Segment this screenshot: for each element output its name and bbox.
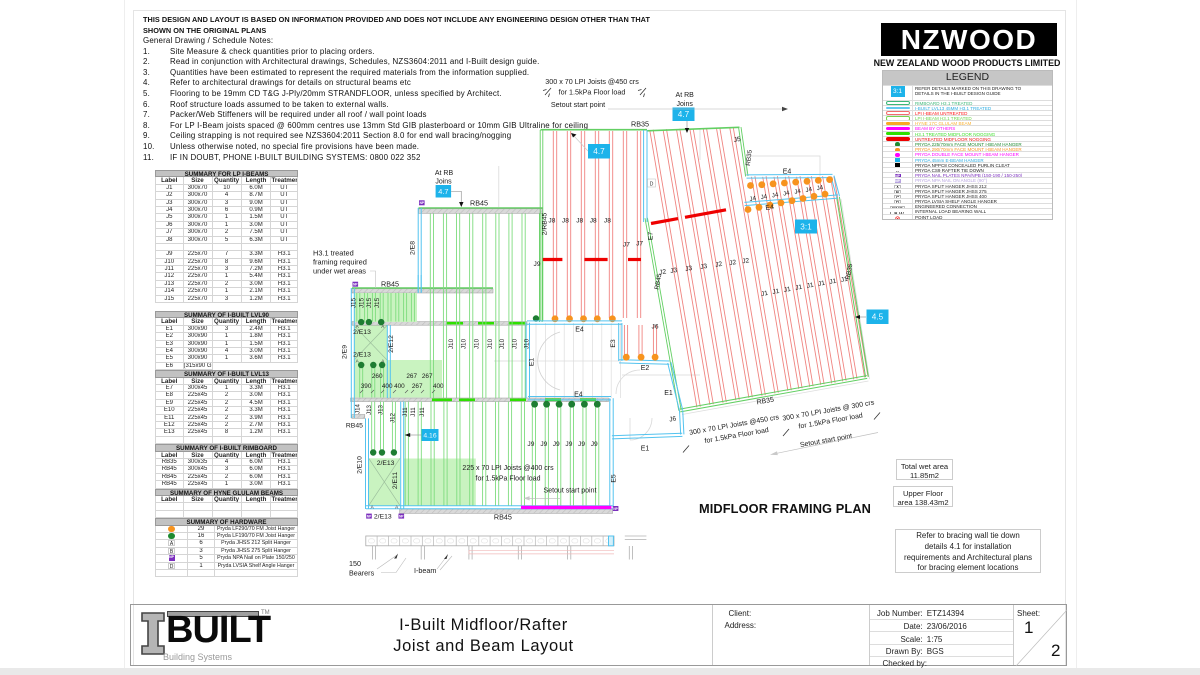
svg-text:J8: J8 (604, 218, 611, 225)
svg-text:J8: J8 (590, 218, 597, 225)
svg-text:J1: J1 (829, 278, 837, 286)
svg-text:J15: J15 (374, 297, 381, 308)
svg-text:J6: J6 (669, 415, 677, 423)
svg-text:J10: J10 (448, 338, 455, 349)
svg-text:E4: E4 (575, 326, 584, 333)
svg-text:E1: E1 (664, 390, 673, 397)
svg-text:Joins: Joins (435, 179, 452, 186)
svg-text:E1: E1 (528, 358, 535, 367)
svg-text:J4: J4 (749, 195, 757, 203)
svg-text:J2: J2 (742, 257, 750, 265)
svg-text:J10: J10 (487, 338, 494, 349)
svg-text:RB45: RB45 (494, 513, 512, 522)
svg-text:J10: J10 (499, 338, 506, 349)
svg-text:RB45: RB45 (346, 423, 363, 430)
svg-text:J9: J9 (534, 261, 541, 268)
svg-text:for 1.5kPa Floor load: for 1.5kPa Floor load (559, 88, 626, 97)
svg-text:267: 267 (412, 383, 423, 390)
svg-text:E3: E3 (610, 339, 617, 348)
svg-text:J15: J15 (351, 297, 358, 308)
svg-text:2/E9: 2/E9 (342, 345, 349, 359)
svg-text:Setout start point: Setout start point (799, 433, 852, 449)
svg-text:J11: J11 (410, 407, 417, 417)
svg-text:Setout start point: Setout start point (544, 488, 597, 495)
svg-text:I-beam: I-beam (414, 566, 436, 575)
svg-text:J9: J9 (565, 441, 572, 448)
svg-text:J8: J8 (562, 218, 569, 225)
svg-text:J1: J1 (795, 284, 803, 292)
svg-text:J10: J10 (511, 338, 518, 349)
svg-text:4.7: 4.7 (593, 147, 605, 156)
svg-text:J1: J1 (772, 288, 780, 296)
svg-text:225 x 70 LPI Joists @400 crs: 225 x 70 LPI Joists @400 crs (462, 465, 554, 472)
svg-text:D: D (650, 181, 654, 187)
svg-text:2/E13: 2/E13 (377, 460, 395, 467)
svg-text:2/E11: 2/E11 (392, 472, 399, 489)
svg-text:RB35: RB35 (631, 120, 649, 129)
svg-text:J10: J10 (524, 338, 531, 349)
svg-text:J4: J4 (816, 184, 824, 192)
svg-text:300 x 70 LPI Joists @450 crs: 300 x 70 LPI Joists @450 crs (545, 77, 639, 86)
svg-text:RB45: RB45 (470, 199, 488, 208)
svg-text:2/E10: 2/E10 (356, 456, 363, 474)
svg-text:J7: J7 (636, 241, 643, 248)
svg-text:J13: J13 (366, 404, 373, 415)
svg-text:J8: J8 (576, 218, 583, 225)
svg-text:E2: E2 (641, 365, 650, 372)
svg-text:H3.1 treated: H3.1 treated (313, 249, 354, 258)
svg-text:J2: J2 (659, 268, 667, 276)
svg-text:400: 400 (433, 383, 444, 390)
svg-text:4.7: 4.7 (438, 187, 448, 196)
svg-text:J10: J10 (460, 338, 467, 349)
svg-text:J1: J1 (783, 286, 791, 294)
svg-text:E1: E1 (641, 446, 650, 453)
svg-text:J10: J10 (474, 338, 481, 349)
svg-text:4.5: 4.5 (872, 313, 884, 322)
svg-text:267: 267 (422, 373, 433, 380)
svg-text:J1: J1 (806, 282, 814, 290)
svg-text:J9: J9 (540, 441, 547, 448)
svg-text:2/E8: 2/E8 (410, 241, 417, 255)
svg-text:under wet areas: under wet areas (313, 267, 366, 276)
svg-text:2/E13: 2/E13 (353, 352, 371, 359)
svg-text:J12: J12 (389, 412, 396, 423)
svg-text:J7: J7 (623, 242, 630, 249)
svg-text:J1: J1 (818, 280, 826, 288)
svg-text:RB45: RB45 (381, 280, 399, 289)
svg-text:2/E13: 2/E13 (374, 514, 392, 521)
svg-text:J6: J6 (652, 324, 659, 331)
svg-text:J14: J14 (355, 403, 362, 414)
svg-text:J15: J15 (358, 297, 365, 308)
svg-text:J4: J4 (805, 186, 813, 194)
svg-text:260: 260 (372, 373, 383, 380)
svg-text:J1: J1 (761, 290, 769, 298)
svg-text:J4: J4 (760, 193, 768, 201)
svg-text:J9: J9 (527, 441, 534, 448)
svg-text:J9: J9 (553, 441, 560, 448)
svg-text:J2: J2 (729, 259, 737, 267)
svg-text:J3: J3 (685, 265, 693, 273)
svg-text:J8: J8 (548, 218, 555, 225)
svg-text:J13: J13 (377, 404, 384, 415)
svg-text:E5: E5 (611, 474, 618, 483)
svg-text:J11: J11 (419, 407, 426, 417)
svg-text:E4: E4 (574, 391, 583, 398)
svg-text:J9: J9 (578, 441, 585, 448)
svg-text:Joins: Joins (677, 101, 694, 108)
svg-text:4.7: 4.7 (678, 110, 690, 119)
svg-text:for 1.5kPa Floor load: for 1.5kPa Floor load (476, 476, 541, 483)
svg-text:Bearers: Bearers (349, 569, 375, 578)
svg-text:4.16: 4.16 (423, 432, 436, 439)
svg-text:J11: J11 (402, 407, 409, 417)
svg-text:E4: E4 (783, 169, 792, 176)
svg-text:J3: J3 (700, 263, 708, 271)
svg-text:RB35: RB35 (745, 149, 754, 166)
svg-text:framing required: framing required (313, 258, 367, 267)
svg-text:J4: J4 (783, 190, 791, 198)
svg-text:150: 150 (349, 559, 361, 568)
svg-text:J4: J4 (794, 188, 802, 196)
svg-text:J2: J2 (715, 261, 723, 269)
svg-text:At RB: At RB (676, 92, 695, 99)
svg-text:Setout start point: Setout start point (551, 100, 605, 109)
svg-text:400: 400 (394, 383, 405, 390)
svg-text:2/E12: 2/E12 (388, 335, 395, 353)
svg-text:E4: E4 (765, 204, 775, 212)
svg-text:J15: J15 (366, 297, 373, 308)
svg-text:J4: J4 (771, 191, 779, 199)
svg-text:267: 267 (406, 373, 417, 380)
svg-text:At RB: At RB (435, 170, 454, 177)
svg-text:J9: J9 (591, 441, 598, 448)
svg-text:2/E13: 2/E13 (353, 329, 371, 336)
svg-text:E7: E7 (648, 232, 655, 241)
svg-text:390: 390 (361, 383, 372, 390)
svg-text:400: 400 (382, 383, 393, 390)
svg-text:3:1: 3:1 (800, 222, 812, 231)
